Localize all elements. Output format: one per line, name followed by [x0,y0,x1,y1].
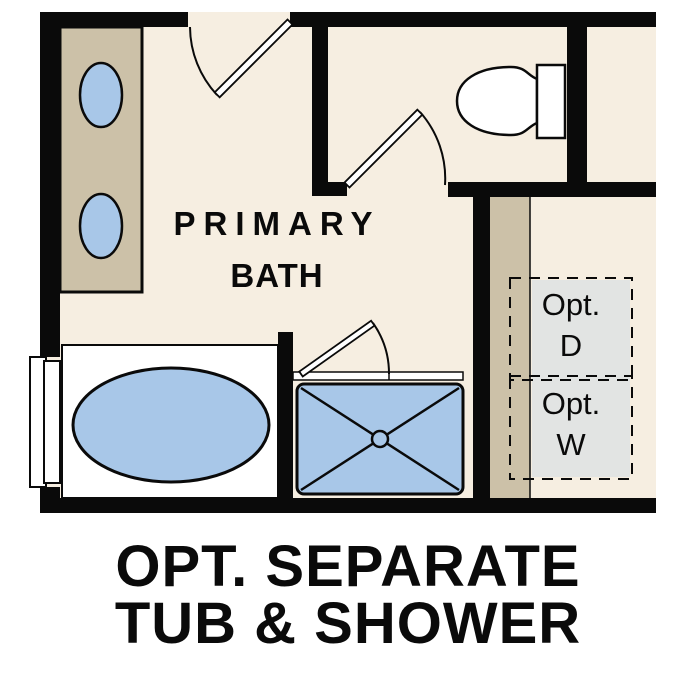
shower-glass-panel [293,372,463,380]
optional-washer-line1: Opt. [510,383,632,424]
caption-line1: OPT. SEPARATE [20,538,676,595]
tub-basin [73,368,269,482]
caption-line2: TUB & SHOWER [20,595,676,652]
toilet-icon [457,65,565,138]
wall-toilet-room-left [312,27,328,184]
figure-caption: OPT. SEPARATE TUB & SHOWER [20,538,676,652]
wall-toilet-room-right [567,27,587,182]
wall-top-left [40,12,188,27]
optional-washer-label: Opt. W [510,383,632,465]
room-label: PRIMARY BATH [127,198,427,302]
sink-icon [80,63,122,127]
optional-washer-line2: W [510,424,632,465]
optional-dryer-line1: Opt. [510,284,632,325]
shower-drain [372,431,388,447]
optional-dryer-line2: D [510,325,632,366]
window-icon [30,357,60,487]
room-label-line2: BATH [127,250,427,302]
floor-plan-figure: PRIMARY BATH Opt. D Opt. W OPT. SEPARATE… [0,0,687,687]
optional-dryer-label: Opt. D [510,284,632,366]
bathtub-icon [62,345,278,498]
wall-toilet-room-left-foot [312,182,347,196]
toilet-tank [537,65,565,138]
wall-left [40,27,60,357]
wall-laundry-left [473,182,490,498]
wall-top-right [290,12,656,27]
wall-tub-shower-divider [278,332,293,498]
wall-bottom [40,498,656,513]
sink-icon [80,194,122,258]
room-label-line1: PRIMARY [127,198,427,250]
window-inner-pane [44,361,60,483]
toilet-bowl [457,67,537,135]
